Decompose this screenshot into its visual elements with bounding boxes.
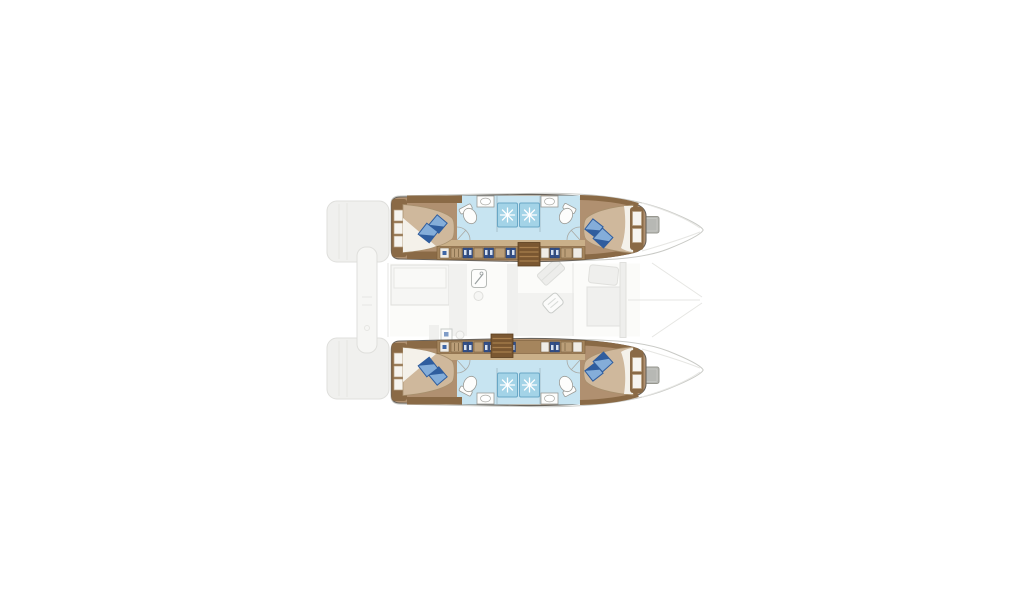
shower-aft: [498, 203, 518, 227]
shower-jet-icon: [501, 208, 515, 222]
cabinet-row: [437, 247, 585, 260]
bottom-burner-icon: [456, 331, 464, 339]
hull-bottom: [391, 338, 703, 406]
galley-worktop: [394, 268, 446, 288]
hull-top: [391, 193, 703, 261]
galley-band: [449, 264, 467, 336]
forward-crossbeam: [620, 263, 626, 338]
companionway-steps-top: [518, 243, 540, 267]
shower-forward: [520, 203, 540, 227]
galley-sink-icon: [472, 270, 487, 288]
cabinet-glyph: [443, 251, 447, 255]
forward-lounge: [587, 287, 622, 326]
aft-lower-trim: [407, 252, 437, 260]
corridor-floor: [437, 240, 585, 247]
bottom-galley-block: [429, 325, 439, 341]
nav-seat: [588, 265, 619, 286]
companionway-steps-bottom: [491, 334, 513, 358]
shower-jet-icon: [523, 208, 537, 222]
drawer-unit: [451, 248, 462, 258]
sink-forward-icon: [541, 196, 558, 207]
forward-shelves: [630, 207, 644, 250]
floor-plan-canvas: [0, 0, 1024, 600]
bottom-galley-unit-icon: [441, 329, 452, 340]
mast-post-band: [507, 264, 518, 336]
aft-wardrobe-trim: [407, 196, 462, 204]
burner-icon: [474, 292, 483, 301]
sink-aft-icon: [477, 196, 494, 207]
davit-bar: [357, 247, 377, 353]
